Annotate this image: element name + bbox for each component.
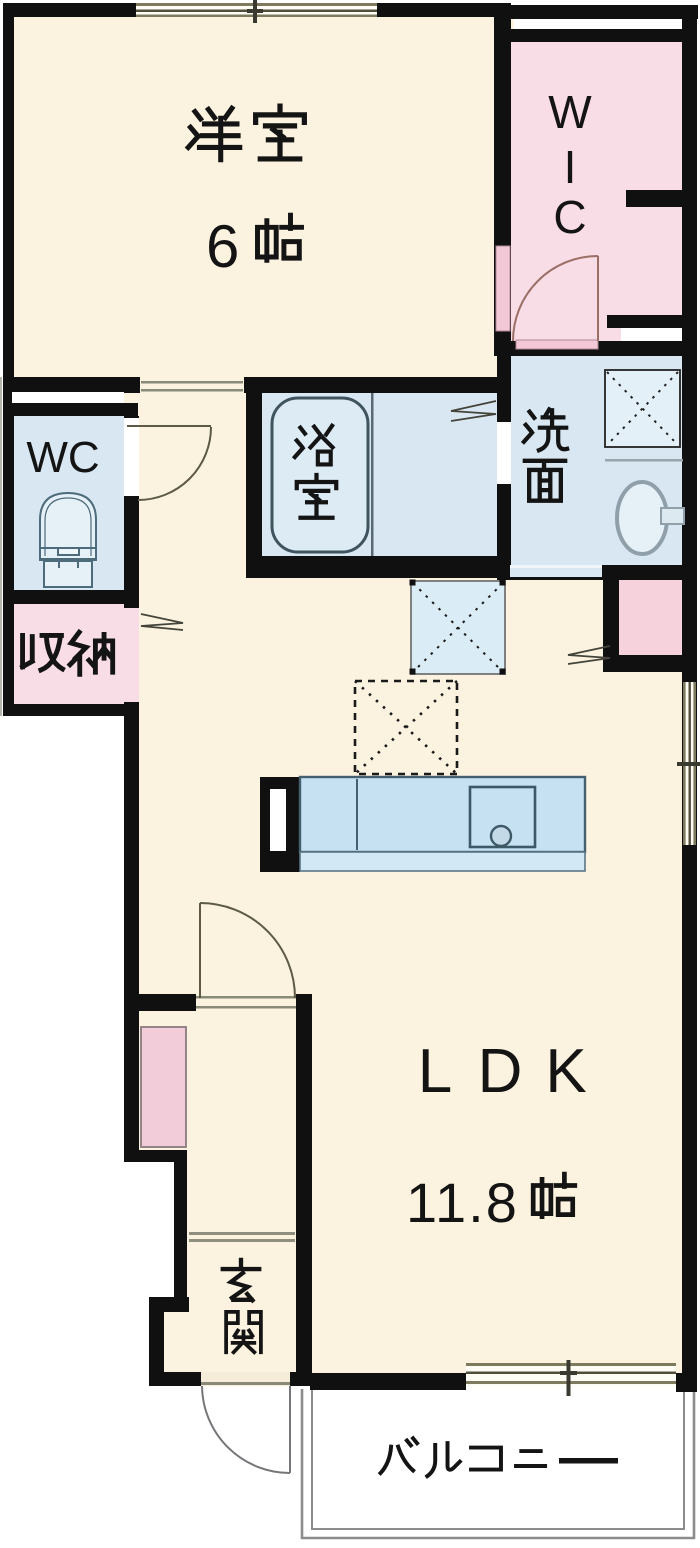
svg-text:D: D [478, 1037, 523, 1106]
svg-text:C: C [553, 191, 586, 243]
svg-text:I: I [564, 141, 577, 193]
svg-text:WC: WC [26, 433, 99, 482]
svg-text:W: W [548, 86, 592, 138]
svg-text:11.8: 11.8 [406, 1171, 519, 1234]
svg-text:L: L [418, 1037, 452, 1106]
svg-text:K: K [545, 1037, 586, 1106]
svg-text:6: 6 [206, 213, 239, 280]
